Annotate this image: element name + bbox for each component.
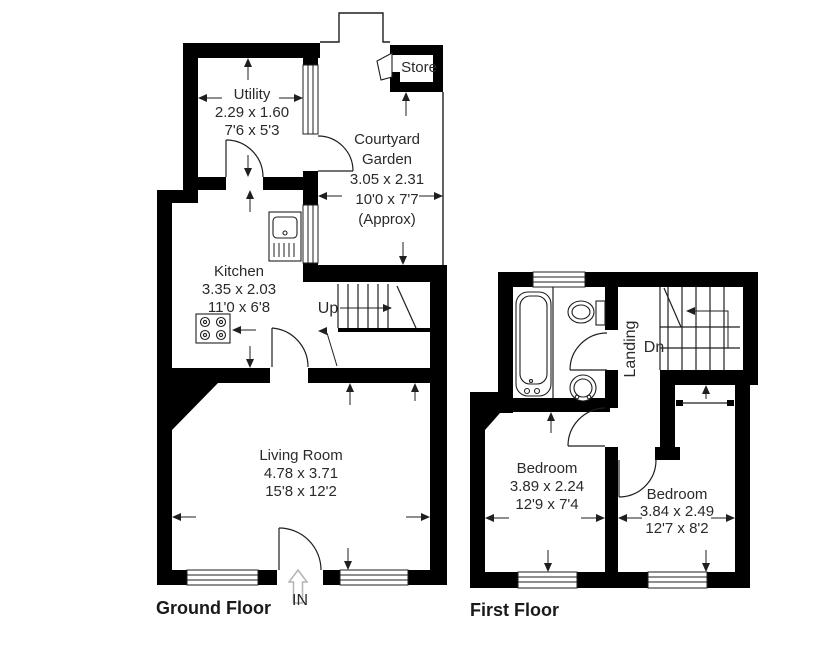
- room-name: Utility: [192, 86, 312, 104]
- dimension-arrow: [399, 242, 407, 265]
- store-door: [377, 53, 392, 80]
- bedroom-2-label: Bedroom 3.84 x 2.49 12'7 x 8'2: [617, 486, 737, 537]
- store-label: Store: [392, 60, 446, 76]
- dimension-arrow: [544, 550, 552, 572]
- dimension-arrow: [232, 326, 256, 334]
- door-arc: [568, 408, 605, 446]
- kitchen-label: Kitchen 3.35 x 2.03 11'0 x 6'8: [179, 263, 299, 317]
- bedroom-1-label: Bedroom 3.89 x 2.24 12'9 x 7'4: [487, 460, 607, 514]
- utility-label: Utility 2.29 x 1.60 7'6 x 5'3: [192, 86, 312, 140]
- dimension-arrow: [244, 155, 252, 177]
- hob-icon: [196, 314, 230, 343]
- window: [533, 272, 585, 287]
- first-floor-plan: [470, 272, 758, 588]
- floorplan-canvas: [0, 0, 832, 651]
- first-floor-title: First Floor: [470, 600, 559, 621]
- room-dim-imperial: 15'8 x 12'2: [241, 483, 361, 501]
- first-floor-walls: [470, 272, 758, 588]
- room-name: Courtyard: [327, 130, 447, 150]
- door-arc: [226, 140, 263, 177]
- staircase-down: [660, 287, 740, 370]
- ground-floor-title: Ground Floor: [156, 598, 271, 619]
- dimension-arrow: [406, 513, 430, 521]
- dimension-arrow: [244, 58, 252, 80]
- window: [340, 570, 408, 585]
- room-dim-imperial: 10'0 x 7'7: [327, 190, 447, 210]
- room-name: Living Room: [241, 447, 361, 465]
- room-dim-metric: 4.78 x 3.71: [241, 465, 361, 483]
- bathroom-fixtures: [516, 287, 605, 401]
- dimension-arrow: [702, 385, 710, 399]
- window: [648, 572, 707, 588]
- room-dim-metric: 3.35 x 2.03: [179, 281, 299, 299]
- dimension-arrow: [485, 514, 509, 522]
- staircase-up: [318, 284, 416, 366]
- room-dim-approx: (Approx): [327, 210, 447, 230]
- dimension-arrow: [411, 383, 419, 401]
- room-dim-imperial: 12'9 x 7'4: [487, 496, 607, 514]
- dimension-arrow: [581, 514, 605, 522]
- living-room-label: Living Room 4.78 x 3.71 15'8 x 12'2: [241, 447, 361, 501]
- room-dim-imperial: 7'6 x 5'3: [192, 122, 312, 140]
- toilet-icon: [568, 301, 605, 325]
- dimension-arrow: [346, 383, 354, 405]
- stairs-down-label: Dn: [640, 339, 668, 357]
- room-name: Bedroom: [487, 460, 607, 478]
- room-dim-metric: 2.29 x 1.60: [192, 104, 312, 122]
- room-dim-imperial: 12'7 x 8'2: [617, 520, 737, 537]
- door-arc: [279, 528, 321, 570]
- dimension-arrow: [246, 190, 254, 212]
- dimension-arrow: [547, 412, 555, 433]
- sink-icon: [570, 375, 596, 401]
- dimension-arrow: [702, 550, 710, 572]
- room-dim-metric: 3.89 x 2.24: [487, 478, 607, 496]
- dimension-arrow: [344, 548, 352, 570]
- dimension-arrow: [172, 513, 196, 521]
- dimension-arrow: [402, 92, 410, 116]
- courtyard-garden-label: Courtyard Garden 3.05 x 2.31 10'0 x 7'7 …: [327, 130, 447, 230]
- window: [518, 572, 577, 588]
- room-name: Bedroom: [617, 486, 737, 503]
- window: [303, 205, 318, 263]
- kitchen-sink-icon: [269, 212, 301, 261]
- room-name: Store: [392, 60, 446, 76]
- door-arc: [570, 333, 607, 370]
- door-arc: [272, 328, 308, 367]
- bathtub-icon: [516, 292, 551, 396]
- room-dim-metric: 3.05 x 2.31: [327, 170, 447, 190]
- room-dim-imperial: 11'0 x 6'8: [179, 299, 299, 317]
- room-name: Kitchen: [179, 263, 299, 281]
- stairs-up-label: Up: [313, 300, 343, 318]
- floorplan-page: Utility 2.29 x 1.60 7'6 x 5'3 Courtyard …: [0, 0, 832, 651]
- room-dim-metric: 3.84 x 2.49: [617, 503, 737, 520]
- landing-label: Landing: [622, 319, 640, 379]
- room-name: Garden: [327, 150, 447, 170]
- entrance-label: IN: [284, 592, 316, 610]
- window: [187, 570, 258, 585]
- dimension-arrow: [246, 346, 254, 368]
